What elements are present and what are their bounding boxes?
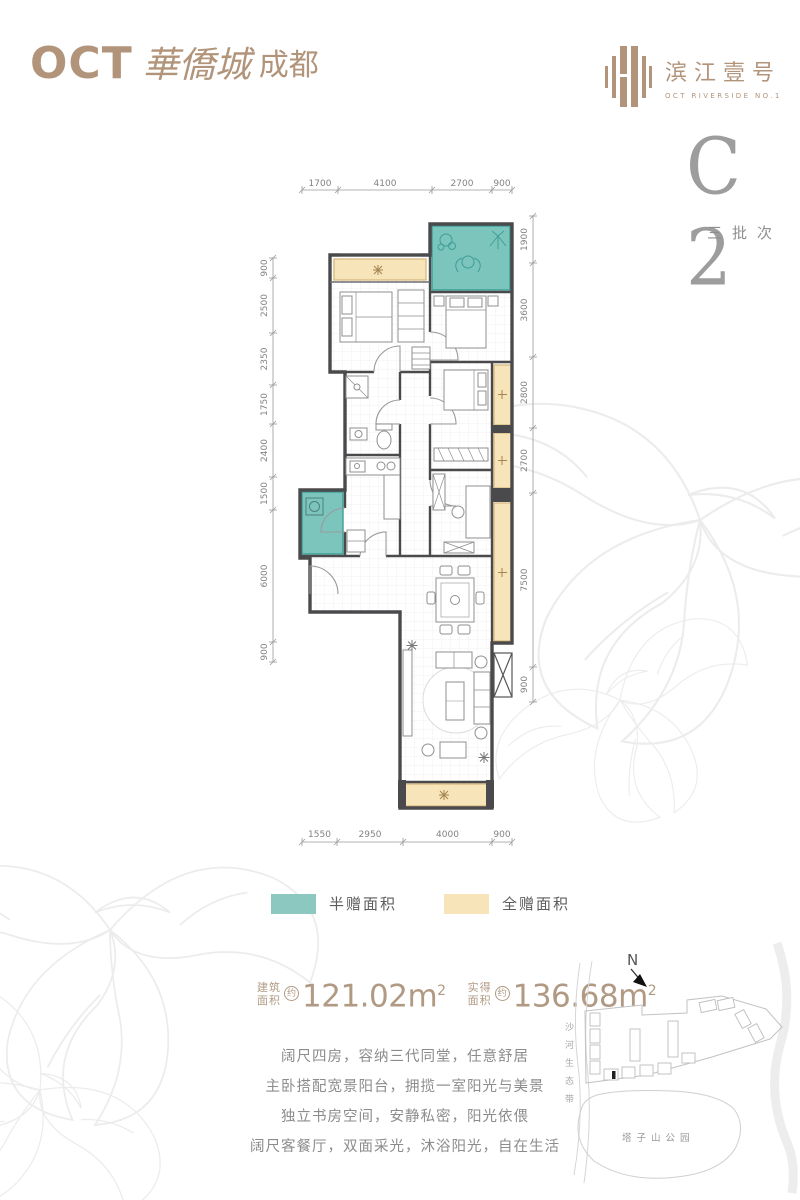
riverside-name-cn: 滨江壹号 (665, 55, 782, 87)
svg-text:2400: 2400 (260, 439, 270, 462)
svg-text:2350: 2350 (260, 347, 270, 370)
highlighted-building-marker (612, 1071, 616, 1079)
svg-text:3600: 3600 (520, 298, 530, 321)
svg-text:2700: 2700 (451, 179, 474, 189)
svg-text:1500: 1500 (260, 482, 270, 505)
description-line: 阔尺客餐厅，双面采光，沐浴阳光，自在生活 (248, 1132, 562, 1162)
svg-text:2800: 2800 (520, 381, 530, 404)
riverside-name-en: OCT RIVERSIDE NO.1 (665, 92, 782, 100)
legend: 半赠面积 全赠面积 (271, 893, 570, 914)
svg-text:2700: 2700 (520, 449, 530, 472)
river (574, 961, 592, 1183)
full-gift-swatch (444, 894, 489, 914)
half-gift-swatch (271, 894, 316, 914)
description-line: 阔尺四房，容纳三代同堂，任意舒居 (248, 1042, 562, 1072)
built-area-label: 建筑 (257, 981, 281, 994)
logo-oct-chengdu: OCT 華僑城 成都 (30, 42, 319, 86)
floor-plan: 1700410027009001550295040009009002500235… (250, 175, 550, 855)
svg-text:4100: 4100 (374, 179, 397, 189)
svg-text:1550: 1550 (308, 830, 331, 840)
svg-text:1750: 1750 (260, 393, 270, 416)
svg-text:900: 900 (260, 643, 270, 660)
svg-text:2500: 2500 (260, 294, 270, 317)
legend-item-full-gift: 全赠面积 (444, 893, 570, 914)
svg-text:900: 900 (493, 179, 510, 189)
svg-text:6000: 6000 (260, 564, 270, 587)
site-map: N 塔子山公园 (552, 925, 800, 1195)
logo-city-label: 成都 (259, 46, 319, 86)
svg-text:1700: 1700 (309, 179, 332, 189)
logo-oct-acronym: OCT (30, 42, 133, 86)
road (775, 943, 794, 1193)
logo-riverside: 滨江壹号 OCT RIVERSIDE NO.1 (603, 44, 782, 110)
site-buildings (590, 997, 764, 1080)
svg-text:900: 900 (260, 259, 270, 276)
svg-text:900: 900 (520, 676, 530, 693)
unit-batch: 三批次 (707, 222, 782, 243)
logo-oct-chinese: 華僑城 (143, 46, 251, 86)
description-text: 阔尺四房，容纳三代同堂，任意舒居 主卧搭配宽景阳台，拥揽一室阳光与美景 独立书房… (248, 1042, 562, 1162)
description-line: 独立书房空间，安静私密，阳光依偎 (248, 1102, 562, 1132)
svg-text:1900: 1900 (520, 228, 530, 251)
approx-circle: 约 (495, 986, 510, 1001)
legend-item-half-gift: 半赠面积 (271, 893, 397, 914)
full-gift-label: 全赠面积 (502, 893, 570, 914)
north-label: N (627, 951, 638, 969)
actual-area-label: 实得 (468, 981, 492, 994)
riverside-building-icon (603, 44, 655, 110)
park-label: 塔子山公园 (622, 1132, 695, 1144)
built-area-value: 121.02m2 (302, 974, 446, 1013)
built-area: 建筑 面积 约 121.02m2 (257, 974, 446, 1013)
unit-code: C 2 (686, 121, 800, 302)
svg-text:4000: 4000 (436, 830, 459, 840)
svg-text:900: 900 (493, 830, 510, 840)
approx-circle: 约 (284, 986, 299, 1001)
half-gift-label: 半赠面积 (329, 893, 397, 914)
brochure-page: OCT 華僑城 成都 滨江壹号 OCT RIVERSIDE NO.1 C 2 三… (0, 0, 800, 1200)
svg-text:7500: 7500 (520, 568, 530, 591)
river-label: 沙河生态带 (562, 1022, 575, 1112)
svg-text:2950: 2950 (359, 830, 382, 840)
description-line: 主卧搭配宽景阳台，拥揽一室阳光与美景 (248, 1072, 562, 1102)
